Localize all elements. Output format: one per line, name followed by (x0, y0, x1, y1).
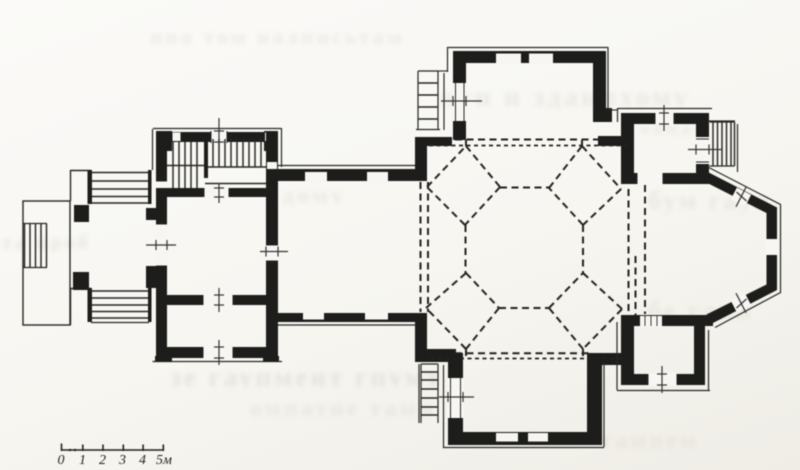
svg-text:4: 4 (139, 453, 146, 468)
svg-text:0: 0 (58, 453, 65, 468)
svg-text:3: 3 (118, 453, 126, 468)
svg-text:1: 1 (79, 453, 86, 468)
svg-text:2: 2 (99, 453, 106, 468)
svg-text:5м: 5м (156, 453, 172, 468)
